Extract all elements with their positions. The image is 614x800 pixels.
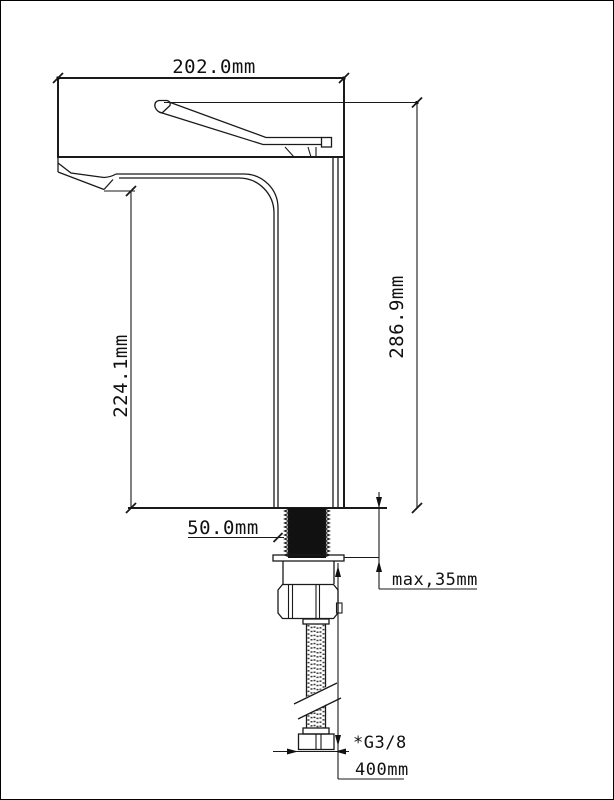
shank-body: [288, 508, 326, 558]
nut-side-tab: [337, 603, 343, 613]
faucet-head: [58, 78, 344, 508]
hose-break-marks: [294, 682, 341, 719]
hose-bottom-collar: [303, 728, 329, 734]
dim-shank: 50.0mm: [187, 517, 284, 542]
nut-upper-cylinder: [283, 561, 334, 584]
body-column: [333, 158, 338, 508]
dim-hose-arrow-down: [335, 735, 341, 746]
mounting-nut: [278, 561, 342, 619]
fitting-arrow-left: [335, 749, 346, 755]
hose-thread-label: *G3/8: [353, 733, 407, 753]
faucet-technical-drawing: 202.0mm 286.9mm 224.1mm 50.0mm max,35mm …: [1, 1, 614, 800]
dim-max-thickness: max,35mm: [344, 492, 478, 590]
hose-length-label: 400mm: [355, 760, 409, 780]
dim-max-arrow-up: [376, 561, 382, 572]
spout-tip-face: [104, 180, 113, 190]
fitting-arrow-right: [287, 749, 298, 755]
dim-width-label: 202.0mm: [172, 56, 256, 78]
nut-facet-lines: [289, 585, 320, 619]
cartridge-neck-lines: [285, 147, 316, 157]
lever-handle: [155, 101, 332, 158]
dim-total-dot-top: [416, 101, 419, 104]
drawing-frame: 202.0mm 286.9mm 224.1mm 50.0mm max,35mm …: [0, 0, 614, 800]
hose-top-collar: [303, 619, 329, 624]
spout-underside-inner: [116, 174, 278, 508]
shank-thread-right: [325, 509, 330, 557]
hose-fitting: [299, 734, 335, 750]
lever-top-edge: [169, 102, 322, 138]
dim-width-dot-left: [57, 77, 60, 80]
spout-upper-lip: [58, 163, 104, 178]
spout: [58, 158, 278, 508]
dim-spout-height: 224.1mm: [104, 186, 136, 513]
dim-total-height-label: 286.9mm: [386, 275, 408, 359]
fitting-facets: [316, 734, 321, 750]
supply-hose: [294, 619, 341, 750]
nut-knurled-body: [278, 585, 338, 619]
spout-lip-arc: [104, 174, 116, 178]
dim-max-arrow-down: [376, 497, 382, 508]
threaded-shank: [285, 508, 330, 558]
lever-end-cap: [322, 138, 332, 148]
dim-width-dot-right: [343, 77, 346, 80]
dim-spout-height-label: 224.1mm: [110, 334, 132, 418]
dim-total-height: 286.9mm: [164, 98, 422, 514]
dim-shank-label: 50.0mm: [187, 517, 259, 539]
spout-underside-outer: [119, 178, 274, 508]
shank-thread-left: [285, 509, 290, 557]
dim-max-thickness-label: max,35mm: [392, 570, 478, 590]
dim-hose-arrow-up: [335, 566, 341, 577]
